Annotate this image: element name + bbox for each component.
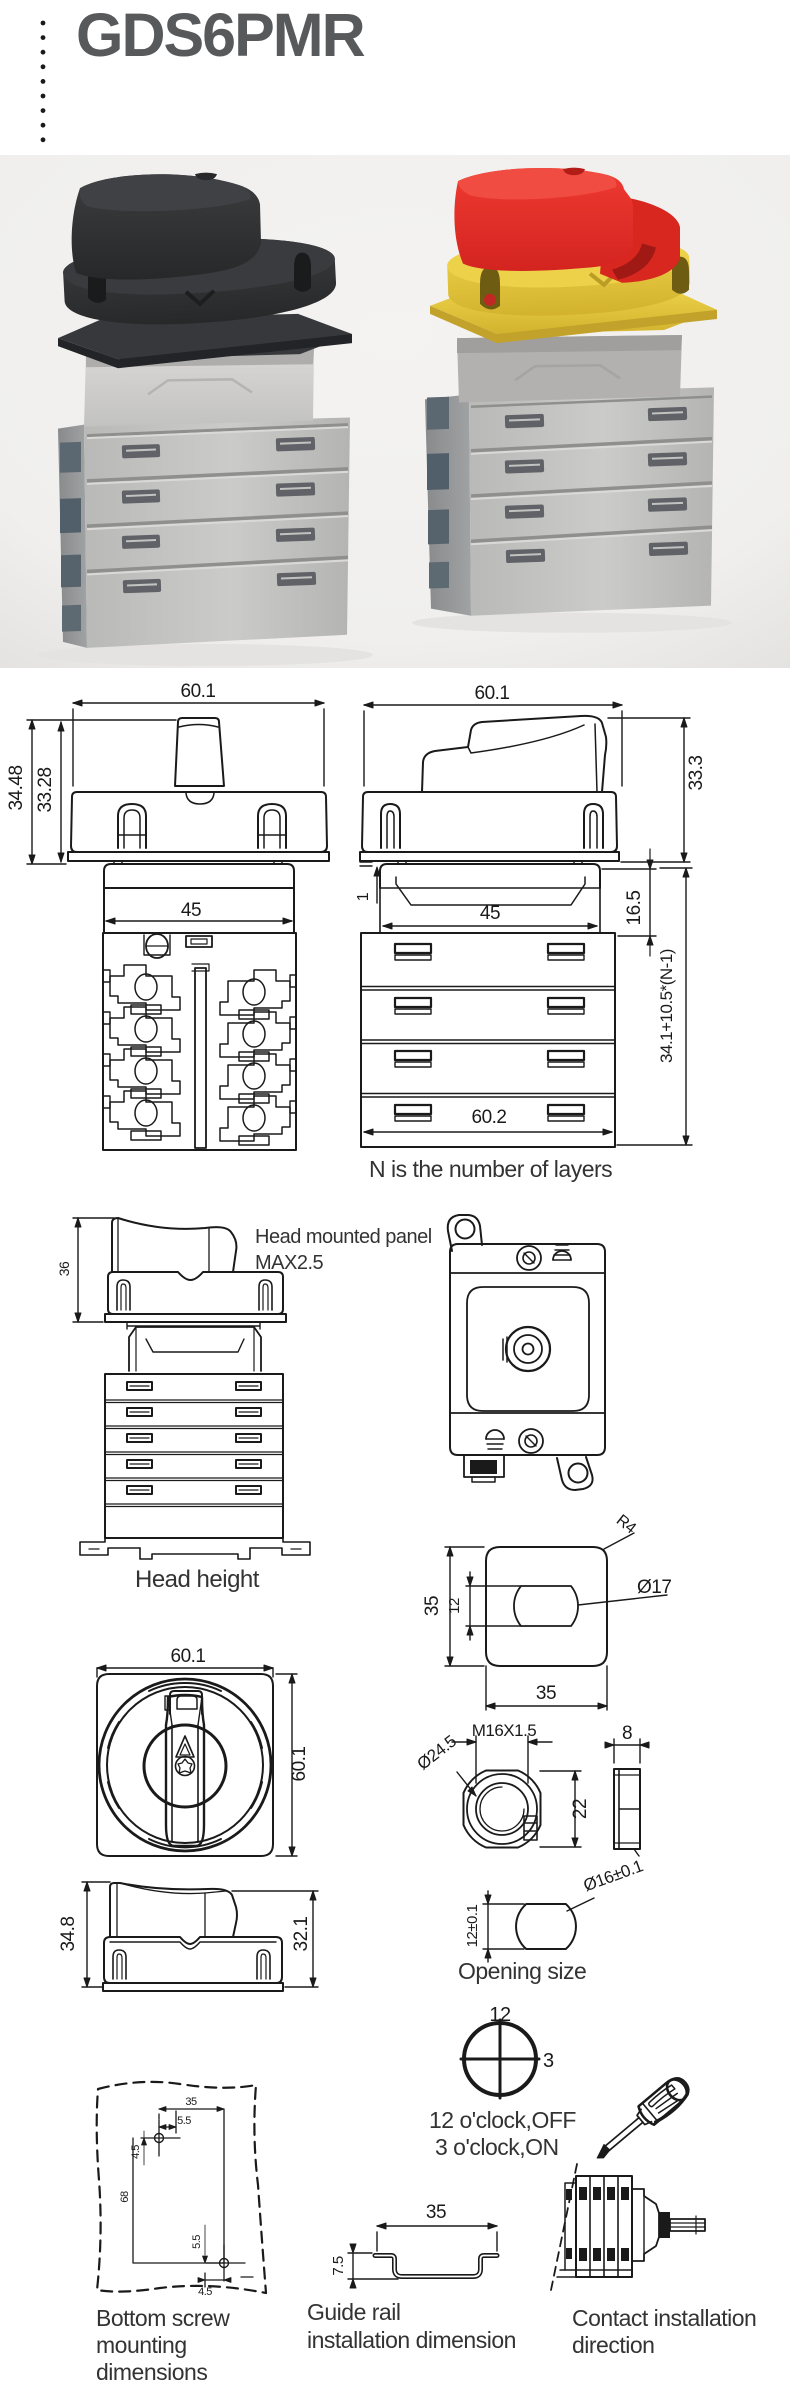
svg-text:3: 3 [543,2050,554,2072]
svg-text:7.5: 7.5 [330,2256,347,2276]
svg-text:Guide rail: Guide rail [307,2299,400,2325]
svg-text:N is the number of layers: N is the number of layers [369,1156,612,1182]
svg-text:Contact installation: Contact installation [572,2305,756,2331]
svg-text:60.2: 60.2 [472,1107,507,1128]
svg-text:mounting: mounting [96,2332,187,2358]
svg-text:45: 45 [480,903,500,924]
svg-text:16.5: 16.5 [624,891,645,926]
svg-text:35: 35 [426,2202,446,2223]
svg-text:Head height: Head height [135,1566,260,1593]
svg-text:68: 68 [119,2191,131,2203]
svg-text:35: 35 [536,1683,556,1704]
svg-text:34.8: 34.8 [58,1917,79,1952]
svg-text:35: 35 [185,2096,197,2108]
svg-text:34.48: 34.48 [6,765,27,810]
svg-text:60.1: 60.1 [171,1646,206,1667]
svg-text:Opening size: Opening size [458,1958,586,1984]
svg-text:installation dimension: installation dimension [307,2327,516,2353]
svg-text:8: 8 [622,1723,632,1744]
svg-text:33.3: 33.3 [686,756,707,791]
svg-text:Bottom screw: Bottom screw [96,2305,230,2331]
svg-text:60.1: 60.1 [181,681,216,702]
svg-text:5.5: 5.5 [177,2115,191,2127]
svg-text:Head mounted panel: Head mounted panel [255,1226,432,1248]
svg-text:35: 35 [422,1596,443,1616]
svg-text:1: 1 [355,892,372,901]
svg-text:36: 36 [56,1261,72,1276]
svg-text:3 o'clock,ON: 3 o'clock,ON [435,2134,559,2160]
svg-text:R4: R4 [613,1512,639,1538]
svg-text:Ø24.5: Ø24.5 [414,1732,460,1774]
svg-text:direction: direction [572,2332,654,2358]
svg-text:12: 12 [446,1598,463,1614]
svg-text:MAX2.5: MAX2.5 [255,1252,324,1274]
svg-text:4.5: 4.5 [130,2145,142,2159]
svg-text:5.5: 5.5 [191,2235,203,2249]
svg-text:Ø17: Ø17 [637,1577,671,1598]
svg-text:M16X1.5: M16X1.5 [472,1721,537,1740]
svg-text:12±0.1: 12±0.1 [464,1904,481,1947]
svg-text:60.1: 60.1 [289,1747,310,1782]
svg-text:32.1: 32.1 [291,1917,312,1952]
svg-text:Ø16±0.1: Ø16±0.1 [581,1856,645,1895]
svg-text:dimensions: dimensions [96,2359,207,2385]
svg-text:12 o'clock,OFF: 12 o'clock,OFF [429,2107,576,2133]
svg-text:4.5: 4.5 [198,2286,212,2298]
svg-text:60.1: 60.1 [475,683,510,704]
svg-text:34.1+10.5*(N-1): 34.1+10.5*(N-1) [657,949,676,1063]
svg-text:33.28: 33.28 [35,767,56,812]
svg-text:12: 12 [489,2004,511,2026]
svg-text:22: 22 [570,1799,591,1819]
svg-text:45: 45 [181,900,201,921]
